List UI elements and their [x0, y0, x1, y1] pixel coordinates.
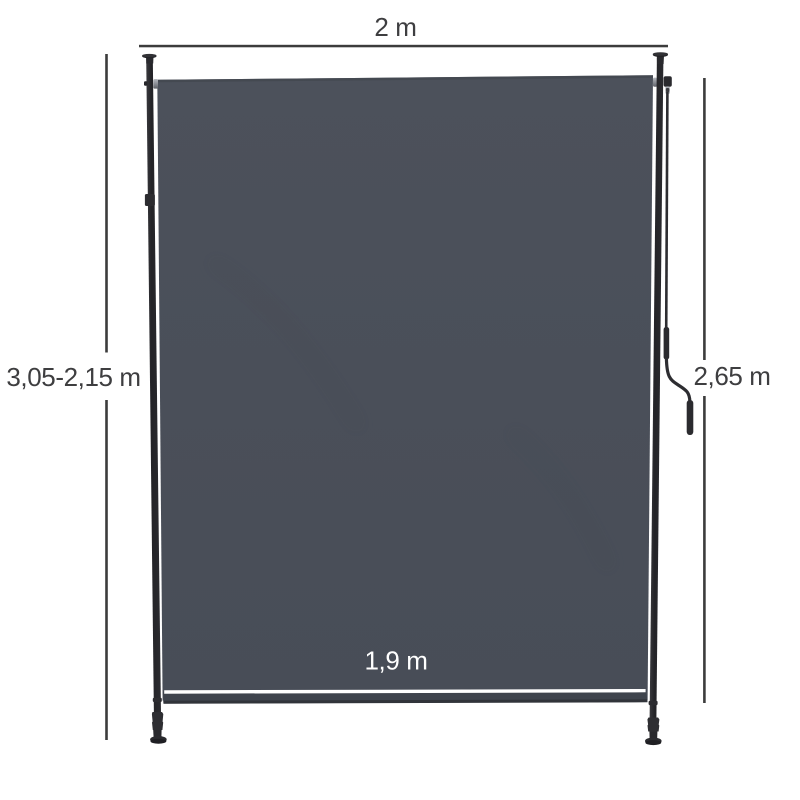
svg-text:2,65 m: 2,65 m	[693, 361, 770, 391]
svg-text:1,9 m: 1,9 m	[364, 646, 427, 676]
svg-text:3,05-2,15 m: 3,05-2,15 m	[6, 362, 140, 392]
svg-text:2 m: 2 m	[374, 12, 416, 42]
